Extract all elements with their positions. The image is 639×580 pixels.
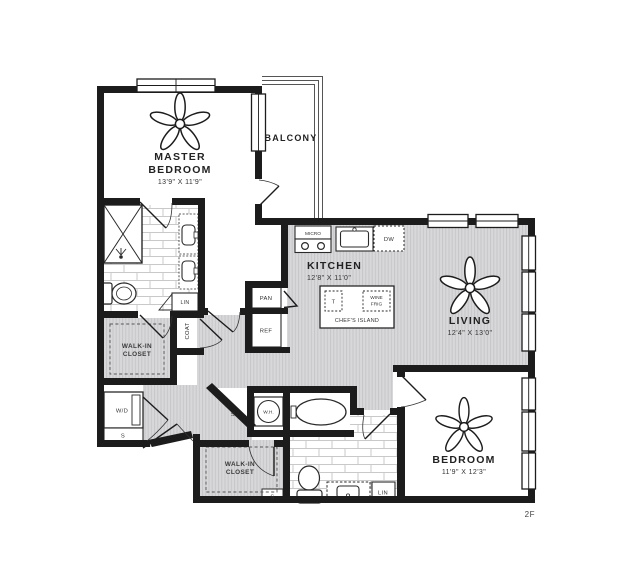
living-dims: 12'4" X 13'0" bbox=[448, 330, 493, 337]
wine-fridge bbox=[363, 291, 390, 311]
water-heater-label: W.H. bbox=[263, 410, 273, 416]
master-bedroom-label-1: MASTER bbox=[154, 151, 206, 163]
walk-in-closet-1-label-1: WALK-IN bbox=[122, 343, 152, 350]
washer-dryer-door bbox=[132, 395, 140, 425]
floor-tag: 2F bbox=[525, 510, 535, 519]
chefs-island-label: CHEF'S ISLAND bbox=[335, 318, 379, 324]
faucet-2-icon bbox=[194, 268, 198, 274]
balcony-label: BALCONY bbox=[265, 133, 318, 143]
washer-dryer-label: W/D bbox=[116, 409, 128, 415]
kitchen-label: KITCHEN bbox=[307, 260, 362, 272]
burner-icon bbox=[318, 243, 325, 250]
bedroom-label: BEDROOM bbox=[432, 454, 495, 466]
sink-2-icon bbox=[182, 261, 195, 281]
burner-icon bbox=[302, 243, 309, 250]
microwave-label: MICRO bbox=[305, 231, 321, 237]
kitchen-faucet-icon bbox=[353, 228, 356, 231]
floor-plan-page: MASTER BEDROOM 13'9" X 11'9" BALCONY KIT… bbox=[0, 0, 639, 580]
master-bedroom-label-2: BEDROOM bbox=[148, 164, 211, 176]
coat-closet-label: COAT bbox=[185, 322, 191, 339]
lin-bath2-label: LIN bbox=[378, 491, 388, 497]
master-bedroom-dims: 13'9" X 11'9" bbox=[158, 179, 202, 186]
walk-in-closet-2-label-2: CLOSET bbox=[226, 469, 254, 476]
kitchen-sink-basin bbox=[341, 231, 369, 247]
shelf-label-closet2: S bbox=[270, 495, 274, 501]
pantry-label: PAN bbox=[260, 296, 272, 302]
lin-master-label: LIN bbox=[181, 300, 190, 306]
walk-in-closet-1-label-2: CLOSET bbox=[123, 351, 151, 358]
wine-fridge-label-1: WINE bbox=[370, 295, 383, 301]
toilet-bowl-inner bbox=[117, 287, 132, 300]
bedroom-dims: 11'9" X 12'3" bbox=[442, 469, 486, 476]
walk-in-closet-2-label-1: WALK-IN bbox=[225, 461, 255, 468]
shelf-label-wd: S bbox=[121, 434, 125, 440]
trash-label: T bbox=[332, 300, 336, 306]
sink-1-icon bbox=[182, 225, 195, 245]
bathtub bbox=[296, 399, 346, 425]
faucet-1-icon bbox=[194, 232, 198, 238]
bath2-tile-nook bbox=[350, 415, 397, 437]
dishwasher-label: DW bbox=[384, 237, 394, 243]
toilet2-bowl bbox=[299, 466, 320, 490]
kitchen-dims: 12'8" X 11'0" bbox=[307, 275, 351, 282]
balcony-railing bbox=[262, 77, 323, 219]
hallway-floor bbox=[197, 315, 252, 447]
floor-plan-svg: MASTER BEDROOM 13'9" X 11'9" BALCONY KIT… bbox=[0, 0, 639, 580]
living-label: LIVING bbox=[449, 315, 491, 327]
stove bbox=[295, 239, 331, 253]
wine-fridge-label-2: FRIG bbox=[371, 302, 383, 308]
ceiling-fan-icon-master bbox=[149, 93, 211, 152]
tub-faucet-icon bbox=[291, 406, 296, 418]
refrigerator-label: REF bbox=[260, 329, 273, 335]
shelf-label-wh: S bbox=[231, 412, 235, 418]
